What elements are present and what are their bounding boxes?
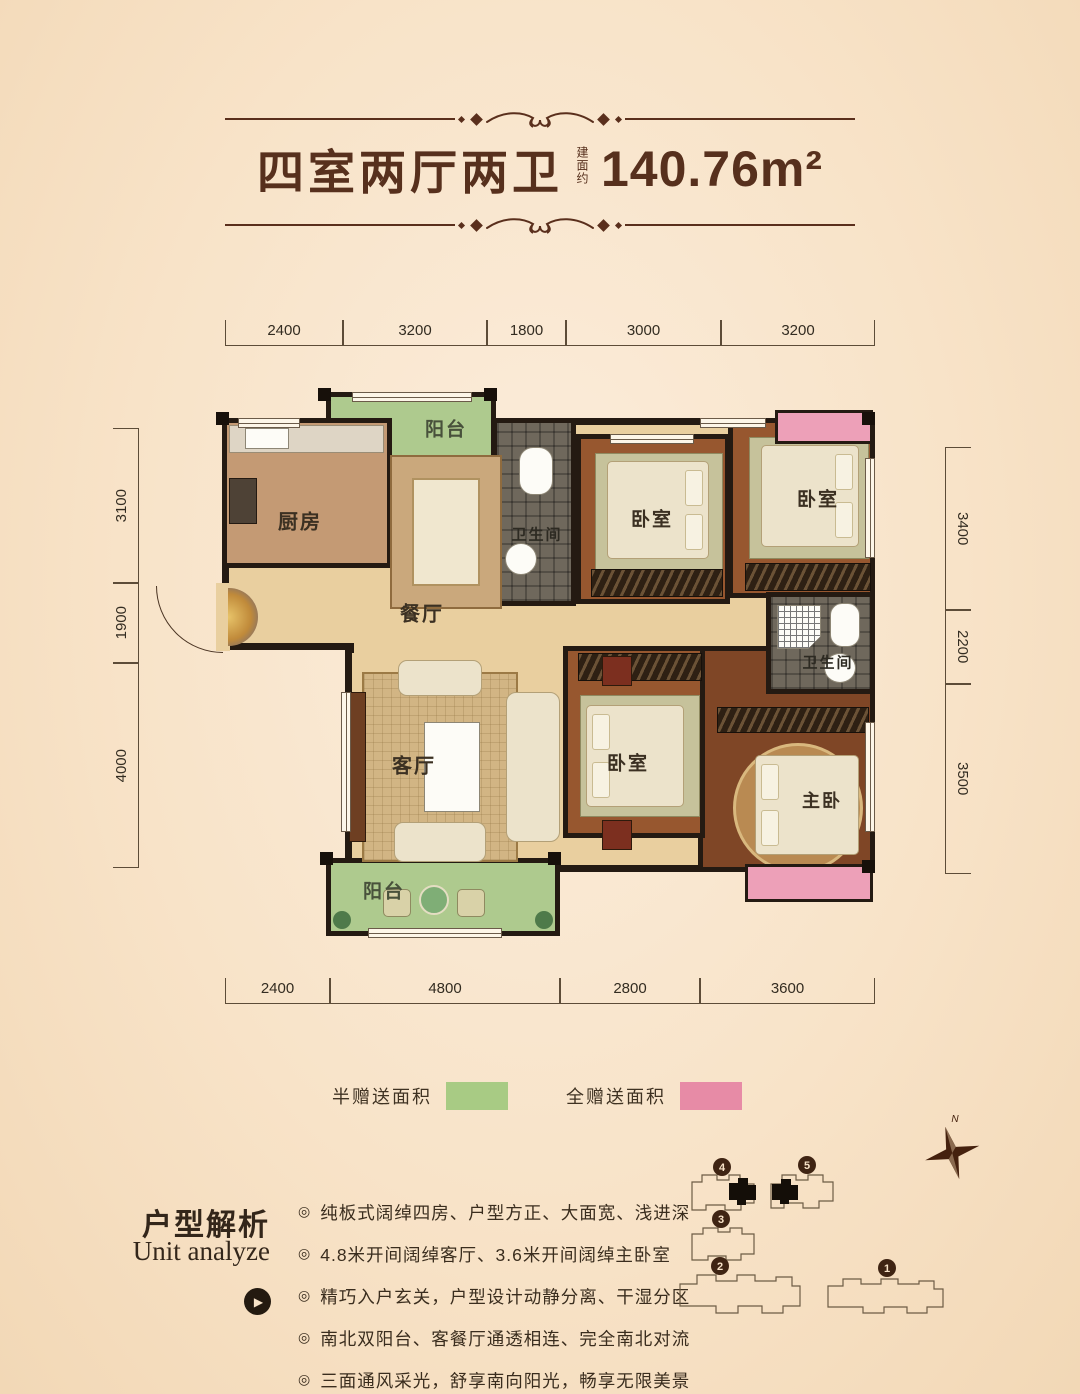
building-3-outline [692, 1228, 754, 1260]
window [341, 692, 351, 832]
pillow [761, 764, 779, 800]
wall-column [318, 388, 331, 401]
label-living: 客厅 [392, 750, 436, 779]
dim-top-2: 3200 [343, 320, 487, 346]
side-table [602, 820, 632, 850]
bullet-text: 4.8米开间阔绰客厅、3.6米开间阔绰主卧室 [320, 1242, 671, 1267]
pillow [685, 470, 703, 506]
sink [505, 543, 537, 575]
window [865, 722, 875, 832]
shower [777, 605, 821, 649]
dim-top-3: 1800 [487, 320, 566, 346]
kitchen-sink [245, 428, 289, 449]
legend-full-gift-label: 全赠送面积 [566, 1083, 666, 1109]
building-5-number: 5 [804, 1160, 810, 1172]
bullet-ring-icon: ◎ [298, 1368, 311, 1390]
dim-left-3: 4000 [113, 663, 139, 868]
pillow [761, 810, 779, 846]
divider-line [625, 118, 855, 120]
legend-half-gift-swatch [446, 1082, 508, 1110]
toilet [830, 603, 860, 647]
label-bedroom2: 卧室 [797, 485, 839, 512]
dim-left-1: 3100 [113, 428, 139, 583]
window [865, 458, 875, 558]
legend: 半赠送面积 全赠送面积 [332, 1082, 742, 1110]
toilet [519, 447, 553, 495]
plant-icon [333, 911, 351, 929]
unit-type-title: 四室两厅两卫 [257, 134, 563, 203]
tv-cabinet [349, 692, 366, 842]
room-kitchen [222, 418, 392, 568]
compass-north-label: N [951, 1114, 959, 1125]
building-4-number: 4 [719, 1162, 726, 1174]
bullet-text: 纯板式阔绰四房、户型方正、大面宽、浅进深 [320, 1200, 690, 1225]
site-plan: 4 5 3 2 1 N [650, 1112, 990, 1372]
page-title: 四室两厅两卫 建面约 140.76m² [0, 134, 1080, 203]
bullet-ring-icon: ◎ [298, 1284, 311, 1306]
balcony-table [419, 885, 449, 915]
wall-column [862, 860, 875, 873]
window [700, 418, 766, 428]
window [368, 928, 502, 938]
dim-top-4: 3000 [566, 320, 721, 346]
bedroom2-wardrobe [745, 563, 871, 591]
pillow [592, 714, 610, 750]
dim-bottom-3: 2800 [560, 978, 700, 1004]
divider-line [225, 118, 455, 120]
play-arrow-icon: ▶ [254, 1296, 263, 1308]
ornament-divider-top [225, 106, 855, 132]
label-kitchen: 厨房 [278, 506, 322, 535]
gift-area-bottom [745, 864, 873, 902]
wall-column [320, 852, 333, 865]
building-4-highlight-unit [729, 1178, 756, 1205]
compass-icon [918, 1120, 986, 1187]
dim-right-2: 2200 [945, 610, 971, 684]
building-1-outline [828, 1279, 943, 1313]
bullet-ring-icon: ◎ [298, 1242, 311, 1264]
legend-half-gift-label: 半赠送面积 [332, 1083, 432, 1109]
window [238, 418, 300, 428]
bullet-text: 精巧入户玄关，户型设计动静分离、干湿分区 [320, 1284, 690, 1309]
dim-top-5: 3200 [721, 320, 875, 346]
label-bedroom1: 卧室 [631, 505, 673, 532]
legend-full-gift-swatch [680, 1082, 742, 1110]
bullet-text: 三面通风采光，舒享南向阳光，畅享无限美景 [320, 1368, 690, 1393]
pillow [685, 514, 703, 550]
ornament-divider-bottom [225, 212, 855, 238]
window [610, 434, 694, 444]
side-table [602, 656, 632, 686]
plant-icon [535, 911, 553, 929]
diamond-icon [597, 219, 610, 232]
building-5-highlight-unit [772, 1179, 798, 1204]
dim-left-2: 1900 [113, 583, 139, 663]
diamond-icon [597, 113, 610, 126]
area-prefix-label: 建面约 [575, 146, 589, 192]
gift-area-top [775, 410, 873, 444]
building-1-number: 1 [884, 1263, 890, 1275]
play-circle-icon: ▶ [244, 1288, 271, 1315]
label-balcony-top: 阳台 [425, 415, 467, 442]
analysis-title-en: Unit analyze [60, 1236, 270, 1267]
building-2-outline [680, 1275, 800, 1313]
label-dining: 餐厅 [400, 598, 444, 627]
diamond-icon [470, 219, 483, 232]
room-bathroom1 [492, 418, 576, 606]
dim-top-1: 2400 [225, 320, 343, 346]
wall-column [548, 852, 561, 865]
scroll-flourish-icon [485, 212, 595, 238]
building-2-number: 2 [717, 1261, 723, 1273]
dim-bottom-2: 4800 [330, 978, 560, 1004]
diamond-icon [615, 115, 622, 122]
window [352, 392, 472, 402]
dining-table [412, 478, 480, 586]
building-3-number: 3 [718, 1214, 724, 1226]
diamond-icon [458, 221, 465, 228]
room-balcony-bottom [326, 858, 560, 936]
sofa-main [506, 692, 560, 842]
bullet-ring-icon: ◎ [298, 1326, 311, 1348]
bedroom3-wardrobe [578, 653, 702, 681]
sofa-top [398, 660, 482, 696]
diamond-icon [458, 115, 465, 122]
diamond-icon [615, 221, 622, 228]
master-wardrobe [717, 707, 869, 733]
wall-column [216, 412, 229, 425]
sofa-bottom [394, 822, 486, 862]
room-bedroom3 [563, 646, 705, 838]
bedroom1-wardrobe [591, 569, 723, 597]
bullet-text: 南北双阳台、客餐厅通透相连、完全南北对流 [320, 1326, 690, 1351]
label-bedroom3: 卧室 [607, 749, 649, 776]
dim-bottom-4: 3600 [700, 978, 875, 1004]
divider-line [625, 224, 855, 226]
kitchen-stove [229, 478, 257, 524]
room-bathroom2 [766, 592, 875, 694]
legend-half-gift: 半赠送面积 [332, 1082, 508, 1110]
balcony-chair [457, 889, 485, 917]
label-balcony-bottom: 阳台 [363, 877, 405, 904]
wall-column [484, 388, 497, 401]
label-bathroom2: 卫生间 [802, 652, 853, 673]
dim-right-3: 3500 [945, 684, 971, 874]
area-value: 140.76m² [601, 140, 823, 198]
poster-page: 四室两厅两卫 建面约 140.76m² 2400 3200 1800 3000 … [0, 0, 1080, 1394]
scroll-flourish-icon [485, 106, 595, 132]
bullet-ring-icon: ◎ [298, 1200, 311, 1222]
dim-right-1: 3400 [945, 447, 971, 610]
building-number-badges: 4 5 3 2 1 [711, 1156, 896, 1277]
wall-column [862, 412, 875, 425]
divider-line [225, 224, 455, 226]
dim-bottom-1: 2400 [225, 978, 330, 1004]
diamond-icon [470, 113, 483, 126]
label-master-bedroom: 主卧 [802, 787, 842, 813]
legend-full-gift: 全赠送面积 [566, 1082, 742, 1110]
label-bathroom1: 卫生间 [511, 524, 562, 545]
